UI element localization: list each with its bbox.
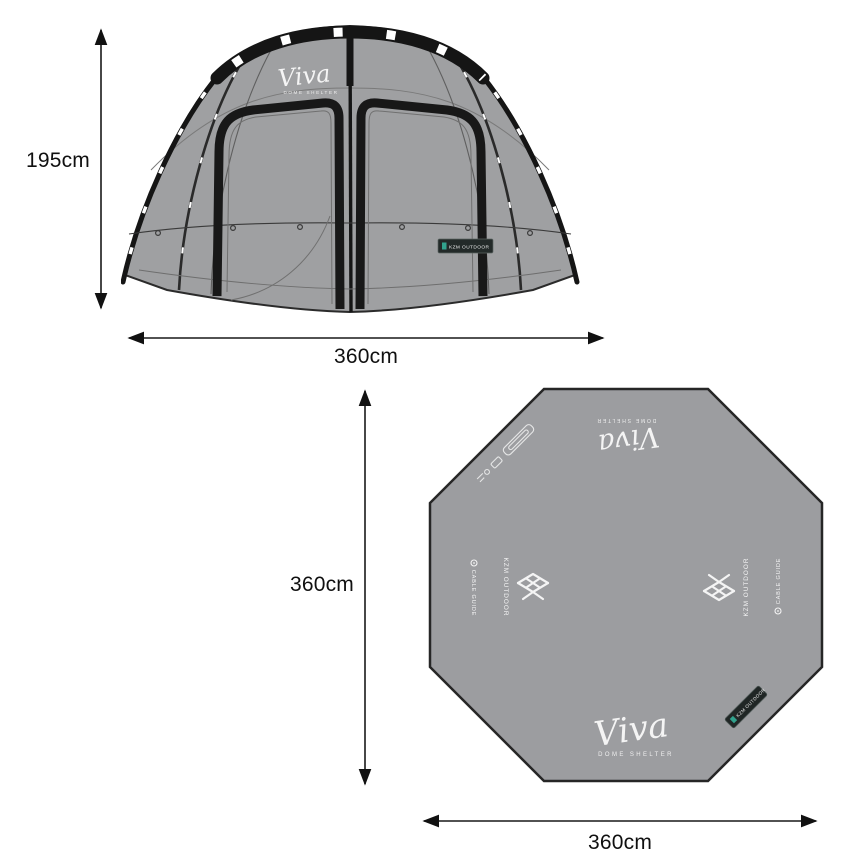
product-dimension-sheet: Viva DOME SHELTER KZM OUTDOOR Viva DOME [0,0,860,860]
floor-width-label: 360cm [540,831,700,854]
floor-height-label: 360cm [262,573,354,596]
front-width-label: 360cm [286,345,446,368]
dimension-lines [0,0,860,860]
front-height-label: 195cm [10,149,90,172]
